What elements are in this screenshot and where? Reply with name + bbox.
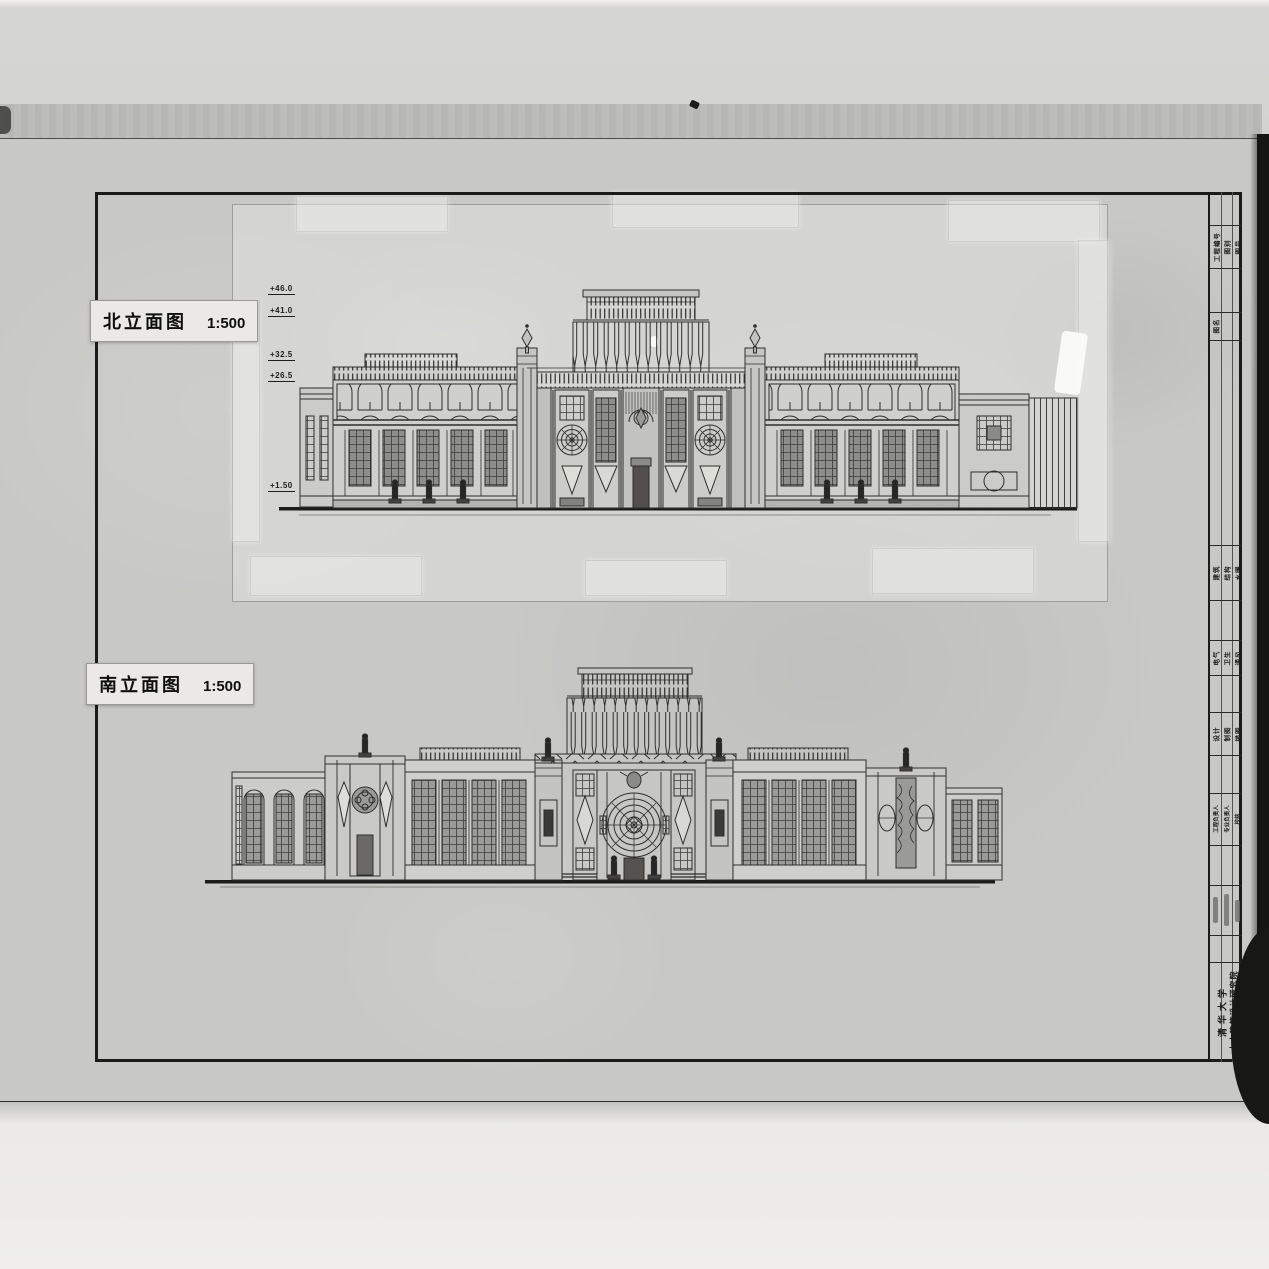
title-block-row-divider [1210, 268, 1242, 269]
field-electrical: 电气 [1211, 650, 1221, 665]
title-block-row-drawing-name: 图名 [1210, 312, 1244, 340]
title-block-row-divider [1210, 755, 1242, 756]
south-central-tower [567, 668, 702, 754]
film-mark-top-left [0, 106, 11, 134]
signature-mark [1224, 894, 1229, 926]
title-block-row-divider [1210, 845, 1242, 846]
north-elevation-label: 北立面图 1:500 [90, 300, 258, 342]
field-drawing-name: 图名 [1211, 319, 1221, 334]
south-elevation-drawing [190, 660, 1020, 900]
field-structure: 结构 [1222, 565, 1232, 580]
field-specialty-lead: 专业负责人 [1223, 805, 1231, 833]
title-block-row-specialty-1: 建筑 结构 水暖 [1210, 545, 1244, 600]
field-drawing-number: 图号 [1233, 239, 1243, 254]
institution-name: 清华大学 [1215, 971, 1228, 1052]
title-block: 工程编号 图别 图号 图名 建筑 结构 水暖 电气 卫生 通风 设计 制图 描图… [1208, 192, 1242, 1062]
field-designer: 设计 [1211, 726, 1221, 741]
title-block-row-divider [1210, 600, 1242, 601]
photographed-drawing-sheet: 北立面图 1:500 南立面图 1:500 +46.0 +41.0 +32.5 … [0, 0, 1269, 1269]
field-checker: 校核 [1234, 813, 1242, 824]
field-plumbing: 水暖 [1233, 565, 1243, 580]
south-center-bay [597, 770, 671, 880]
north-left-pylon [517, 324, 537, 508]
north-elevation-title: 北立面图 [103, 308, 187, 334]
signature-mark [1213, 897, 1218, 923]
title-block-row-divider [1210, 340, 1242, 341]
sheet-top-edge-band [0, 104, 1262, 139]
south-right-wing [733, 748, 866, 880]
south-right-pavilion [866, 748, 946, 880]
field-sanitary: 卫生 [1222, 650, 1232, 665]
south-elevation-title: 南立面图 [99, 671, 183, 697]
north-right-wing [765, 354, 959, 508]
north-elevation-drawing [265, 268, 1095, 533]
title-block-row-header: 工程编号 图别 图号 [1210, 225, 1244, 268]
south-left-wing [405, 748, 535, 880]
field-project-number: 工程编号 [1211, 232, 1221, 262]
title-block-row-divider [1210, 885, 1242, 886]
title-block-row-roles-2: 工程负责人 专业负责人 校核 [1210, 793, 1244, 845]
north-elevation-scale: 1:500 [207, 315, 245, 332]
title-block-row-divider [1210, 935, 1242, 936]
title-block-row-roles-1: 设计 制图 描图 [1210, 712, 1244, 755]
north-left-wing [333, 354, 527, 508]
south-right-end-block [946, 788, 1002, 880]
north-right-end [959, 394, 1077, 508]
field-draftsman: 制图 [1222, 726, 1232, 741]
field-drawing-category: 图别 [1222, 239, 1232, 254]
title-block-row-specialty-2: 电气 卫生 通风 [1210, 640, 1244, 675]
north-left-end-block [300, 388, 333, 507]
photo-paper-lower [0, 1102, 1269, 1269]
field-tracer: 描图 [1233, 726, 1243, 741]
title-block-row-divider [1210, 675, 1242, 676]
north-central-tower [573, 290, 709, 372]
field-ventilation: 通风 [1233, 650, 1243, 665]
field-project-lead: 工程负责人 [1212, 805, 1220, 833]
signature-mark [1235, 900, 1240, 922]
field-architecture: 建筑 [1211, 565, 1221, 580]
north-right-pylon [745, 324, 765, 508]
north-central-block [527, 368, 755, 508]
south-left-pavilion [325, 734, 405, 880]
south-left-end-block [232, 772, 325, 880]
